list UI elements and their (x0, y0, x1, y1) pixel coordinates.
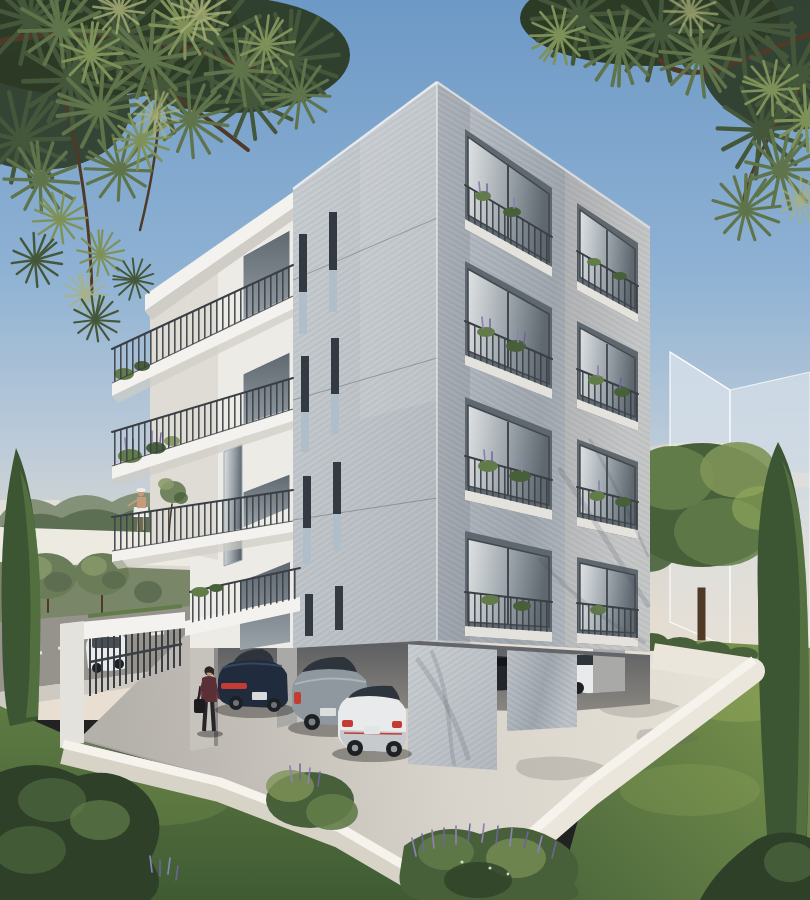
taillight (294, 692, 301, 704)
corner-pier (408, 636, 497, 770)
person-shadow (197, 731, 223, 738)
slit-window (305, 594, 313, 636)
shrub (134, 581, 162, 603)
taillight (342, 720, 353, 727)
slit-window (329, 212, 337, 312)
architectural-render (0, 0, 810, 900)
license-plate (320, 708, 336, 716)
render-canvas (0, 0, 810, 900)
slit-window (303, 476, 311, 564)
sunlit-grass (620, 764, 760, 816)
license-plate (252, 692, 267, 700)
slit-window (331, 338, 339, 434)
slit-window (335, 586, 343, 630)
taillight (392, 721, 402, 728)
slit-window (301, 356, 309, 452)
slit-window (333, 462, 341, 550)
license-plate (364, 726, 380, 734)
pergola-post (60, 621, 84, 748)
taillight (221, 683, 247, 689)
slit-window (299, 234, 307, 334)
handbag (194, 699, 205, 713)
mid-pier (507, 648, 577, 731)
